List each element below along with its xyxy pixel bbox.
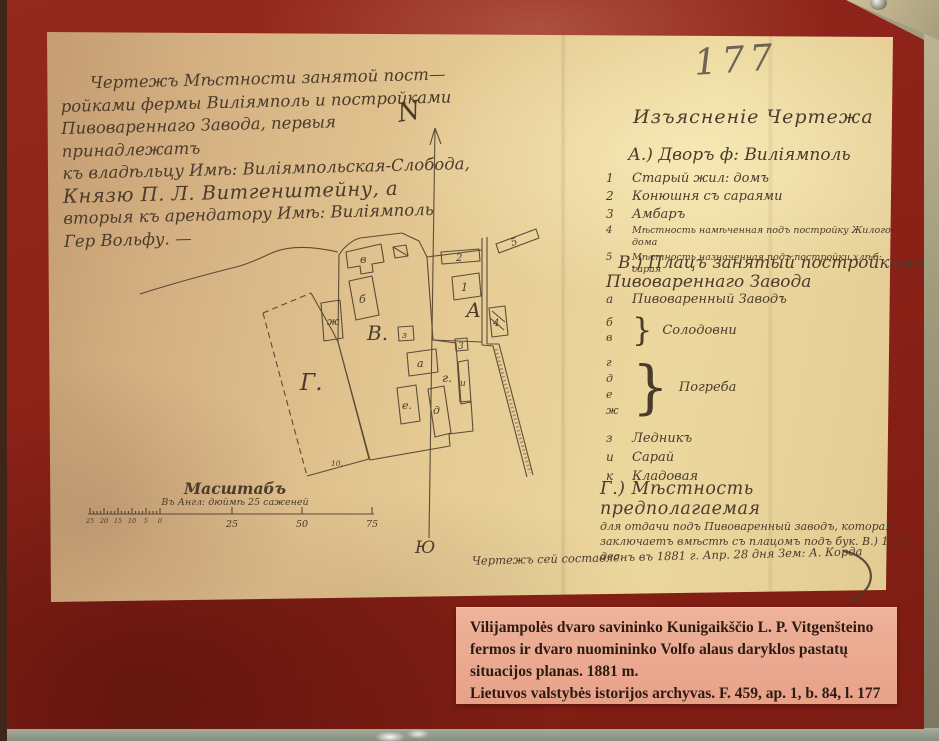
museum-caption-label: Vilijampolės dvaro savininko Kunigaikšči… xyxy=(456,607,897,704)
legend-keys: б в xyxy=(606,315,632,345)
legend-key: 2 xyxy=(606,189,632,204)
legend-heading-line: Пивовареннаго Завода xyxy=(606,273,925,292)
legend-text: Мѣстность намѣченная подъ постройку Жило… xyxy=(632,225,906,249)
caption-line: Vilijampolės dvaro savininko Kunigaikšči… xyxy=(470,617,889,639)
legend-key: 4 xyxy=(606,225,632,249)
legend-key: а xyxy=(606,292,632,307)
display-shelf xyxy=(0,728,939,741)
legend-item: 1 Старый жил: домъ xyxy=(606,171,906,186)
legend-section-b-items: а Пивоваренный Заводъ б в } Солодовни г … xyxy=(606,292,906,488)
legend-heading-line: В.) Плацъ занятый постройками xyxy=(618,254,925,273)
legend-key: 1 xyxy=(606,171,632,186)
brace-glyph: } xyxy=(632,311,652,349)
legend-text: Сарай xyxy=(632,450,674,465)
caption-line: fermos ir dvaro nuomininko Volfo alaus d… xyxy=(470,639,889,661)
legend-item: з Ледникъ xyxy=(606,431,906,446)
wall-strip-right xyxy=(924,0,939,741)
legend-item: 3 Амбаръ xyxy=(606,207,906,222)
legend-item: а Пивоваренный Заводъ xyxy=(606,292,906,307)
legend-text: Старый жил: домъ xyxy=(632,171,769,186)
legend-text: для отдачи подъ Пивоваренный заводъ, кот… xyxy=(600,519,912,534)
legend-key: г xyxy=(606,355,632,371)
board-left-edge xyxy=(0,0,7,741)
legend-item: 2 Конюшня съ сараями xyxy=(606,189,906,204)
scale-title: Масштабъ xyxy=(95,479,375,498)
legend-heading: Изъясненіе Чертежа xyxy=(633,106,874,128)
legend-key: и xyxy=(606,450,632,465)
legend-group-solodovni: б в } Солодовни xyxy=(606,311,906,349)
legend-heading-line: Г.) Мѣстность предполагаемая xyxy=(600,479,912,519)
legend-keys: г д е ж xyxy=(606,355,632,419)
legend-text: Солодовни xyxy=(662,323,736,338)
legend-text: Погреба xyxy=(679,380,736,395)
legend-text: Пивоваренный Заводъ xyxy=(632,292,787,307)
legend-item: 4 Мѣстность намѣченная подъ постройку Жи… xyxy=(606,225,906,249)
legend-group-pogreba: г д е ж } Погреба xyxy=(606,353,906,421)
caption-line: Lietuvos valstybės istorijos archyvas. F… xyxy=(470,683,889,705)
legend-text: Амбаръ xyxy=(632,207,685,222)
legend-key: в xyxy=(606,330,632,345)
legend-section-b-heading: В.) Плацъ занятый постройками Пивоваренн… xyxy=(618,254,925,292)
legend-key: е xyxy=(606,387,632,403)
legend-key: з xyxy=(606,431,632,446)
scale-subtitle: Въ Англ: дюймѣ 25 саженей xyxy=(95,497,375,508)
legend-key: 3 xyxy=(606,207,632,222)
brace-glyph: } xyxy=(632,353,669,421)
legend-text: Конюшня съ сараями xyxy=(632,189,782,204)
title-block: Чертежъ Мѣстности занятой пост— ройками … xyxy=(60,63,472,253)
legend-key: б xyxy=(606,315,632,330)
legend-key: ж xyxy=(606,403,632,419)
legend-text: Ледникъ xyxy=(632,431,692,446)
caption-line: situacijos planas. 1881 m. xyxy=(470,661,889,683)
legend-item: и Сарай xyxy=(606,450,906,465)
museum-display-photo: 177 Чертежъ Мѣстности занятой пост— ройк… xyxy=(0,0,939,741)
archive-number: 177 xyxy=(693,37,779,84)
legend-section-a-heading: А.) Дворъ ф: Виліямполь xyxy=(628,145,851,165)
legend-key: д xyxy=(606,371,632,387)
